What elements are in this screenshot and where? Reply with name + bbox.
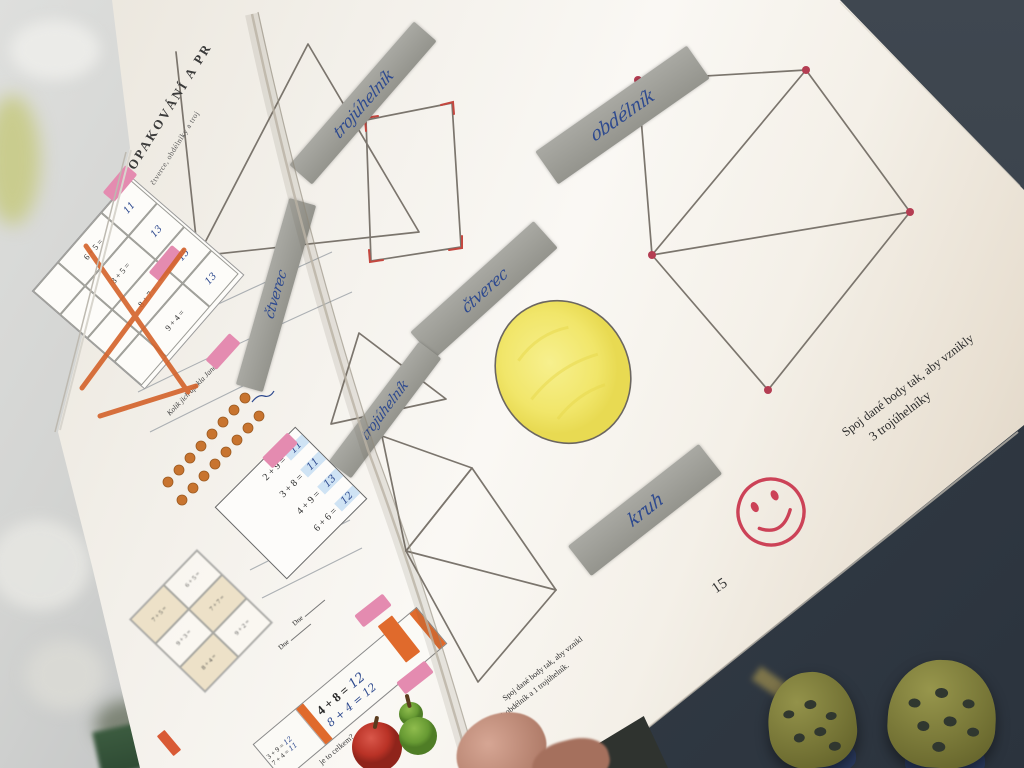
croc-hole xyxy=(943,716,957,727)
croc-hole xyxy=(967,727,979,737)
practice-answer: 12 xyxy=(334,485,360,511)
glass-reflection xyxy=(0,520,90,610)
croc-hole xyxy=(804,699,817,709)
practice-answer: 11 xyxy=(300,451,326,477)
croc-hole xyxy=(935,688,949,699)
croc-hole xyxy=(783,710,795,719)
practice-answer: 13 xyxy=(317,468,343,494)
croc-hole xyxy=(917,721,930,732)
croc-hole xyxy=(932,742,946,753)
practice-problem: 4 + 9 = xyxy=(256,486,325,555)
croc-hole xyxy=(828,741,841,751)
croc-hole xyxy=(825,711,837,720)
glass-reflection xyxy=(0,95,40,225)
photo-scene: OPAKOVÁNÍ A PR čtverce, obdélníky a troj… xyxy=(0,0,1024,768)
croc-hole xyxy=(814,727,827,737)
croc-hole xyxy=(962,699,974,709)
glass-reflection xyxy=(25,640,105,710)
croc-hole xyxy=(793,733,805,743)
croc-hole xyxy=(908,698,920,708)
glass-reflection xyxy=(10,20,100,80)
practice-problem: 3 + 8 = xyxy=(239,469,308,538)
